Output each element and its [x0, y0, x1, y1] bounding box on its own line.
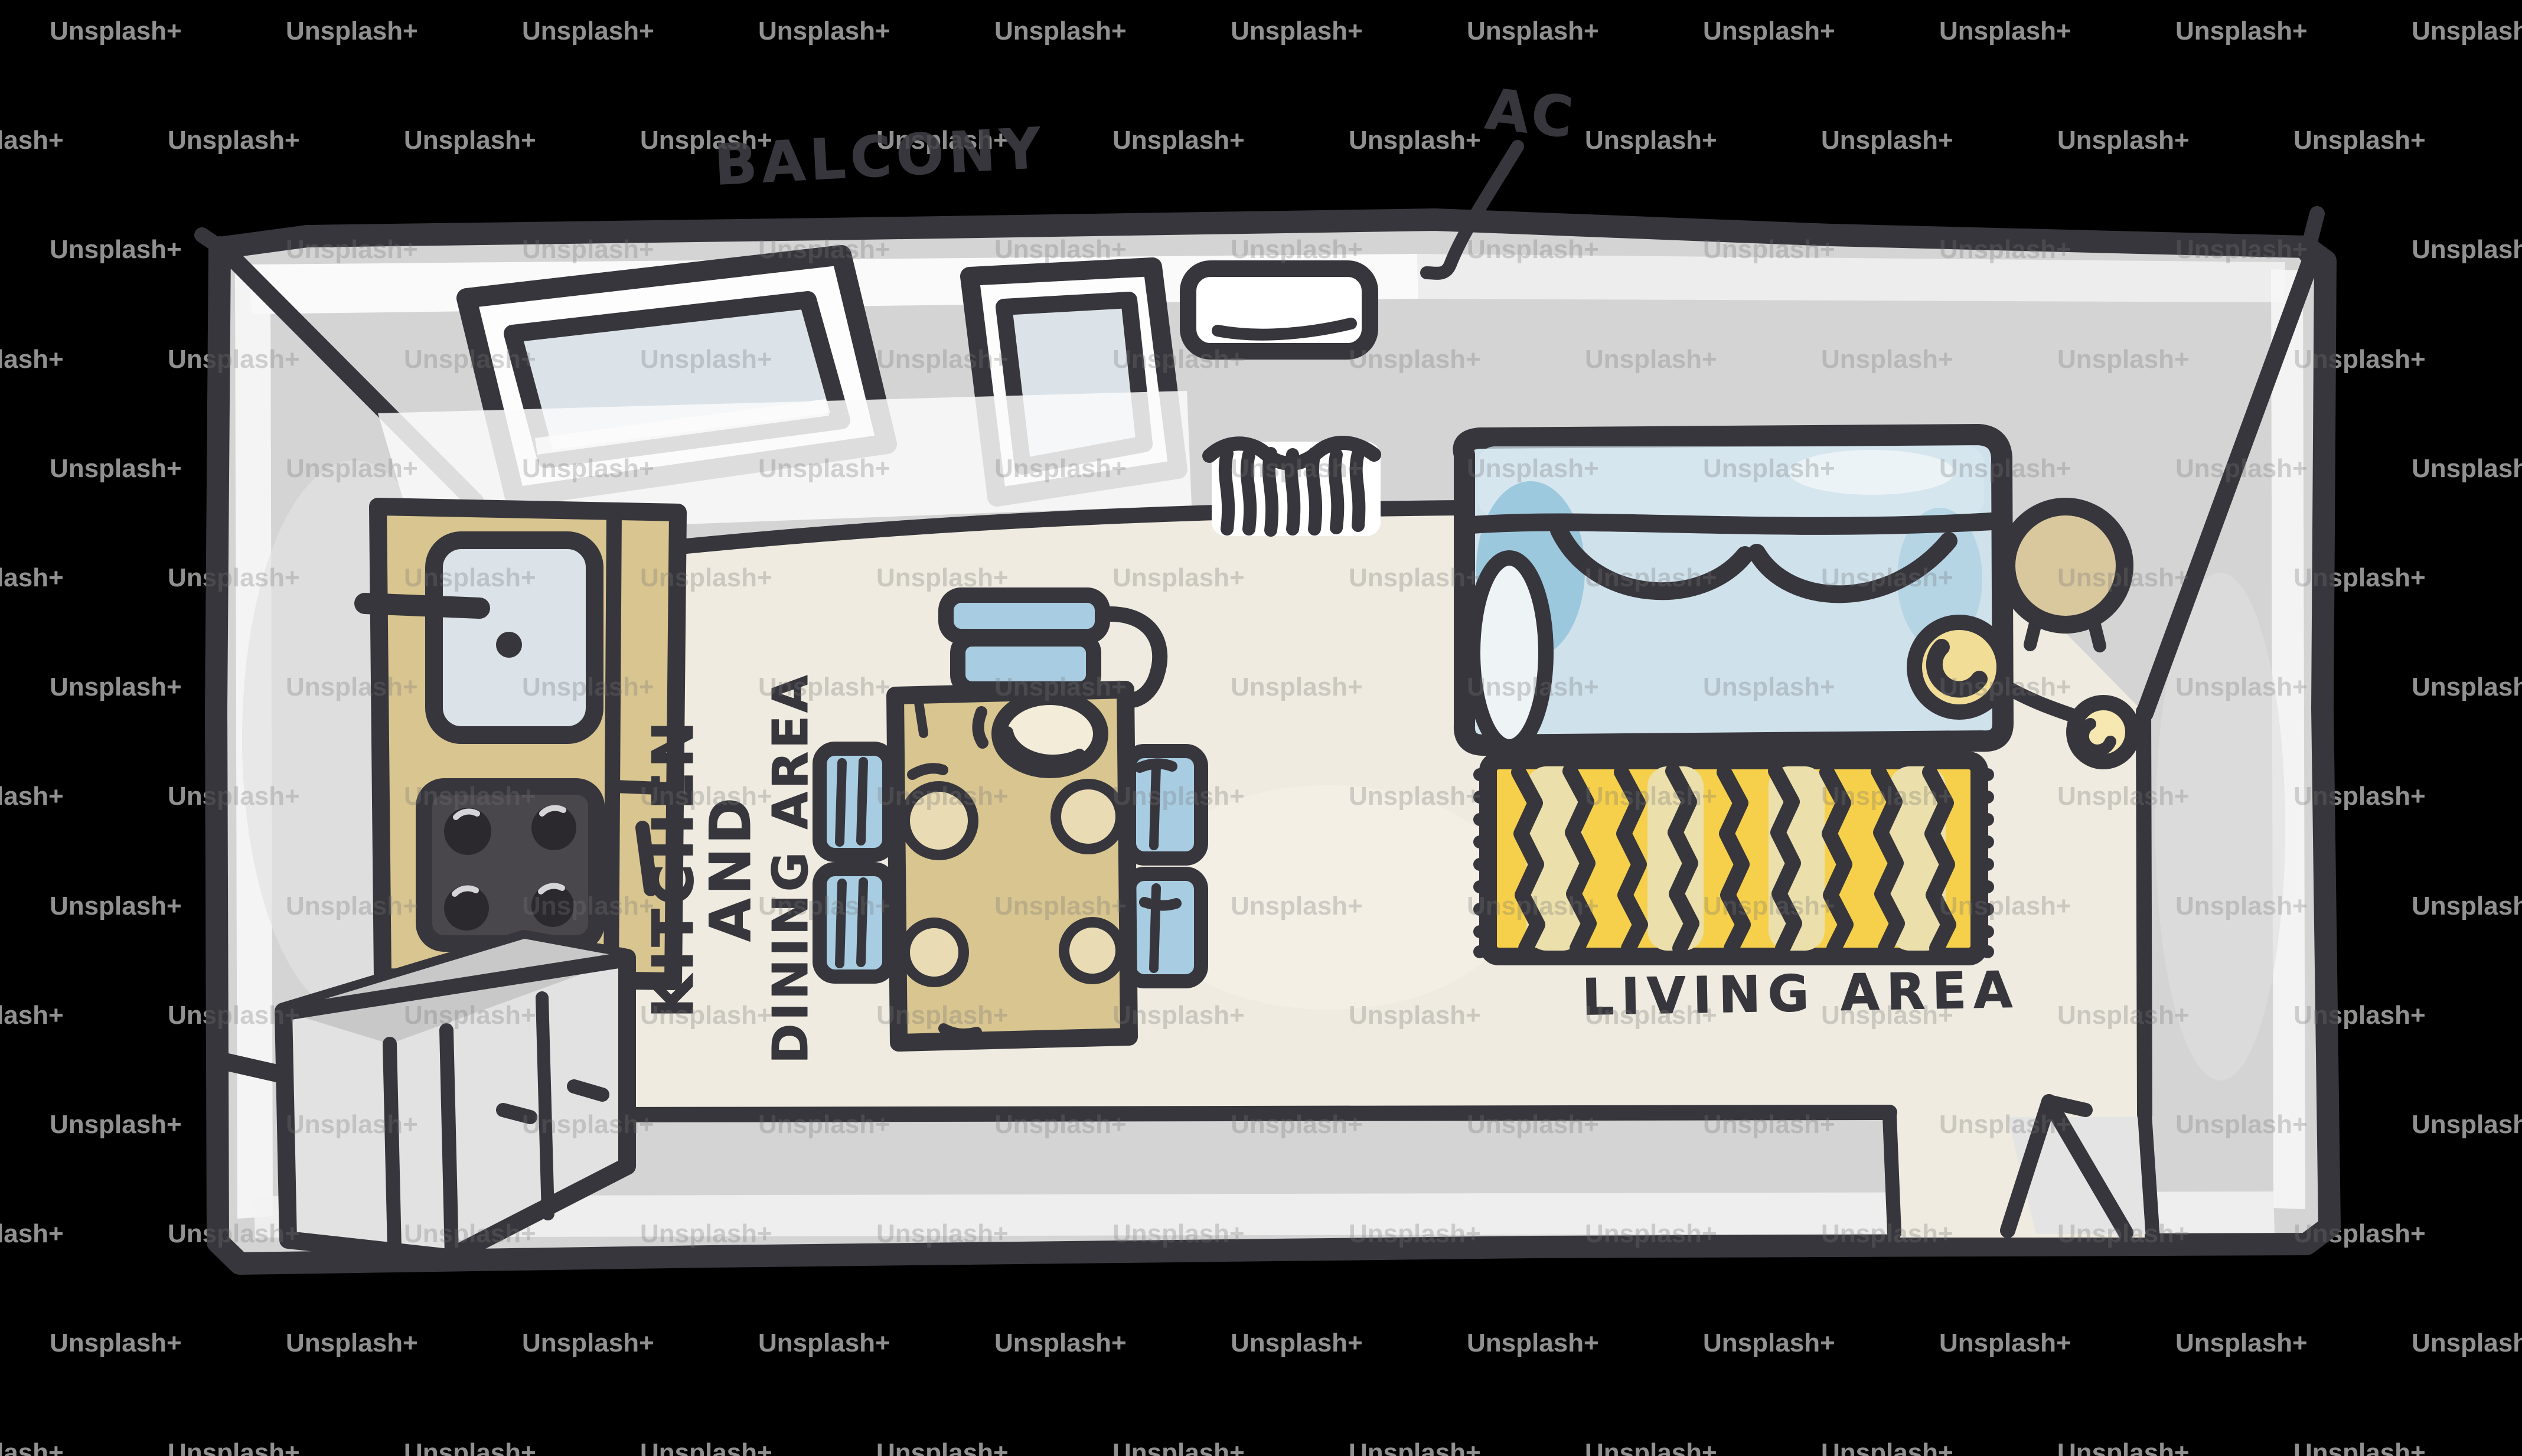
svg-text:AND: AND: [699, 794, 764, 942]
radiator: [1209, 442, 1381, 536]
stove: [424, 786, 596, 944]
plate: [905, 923, 964, 982]
plate: [905, 786, 973, 855]
stock-image-canvas: AC BALCONY KITCHEN AND DINING AREA LIVIN…: [0, 0, 2522, 1456]
cutlery: [1144, 902, 1176, 906]
cutlery: [912, 768, 943, 775]
cutlery: [1140, 763, 1172, 768]
faucet: [365, 603, 479, 608]
dining-chair-right-2: [1129, 874, 1201, 981]
sofa-armrest: [1473, 558, 1546, 747]
cutlery: [944, 1029, 977, 1034]
dining-chair-left-2: [820, 869, 889, 977]
island-handle: [503, 1110, 530, 1117]
plate: [1064, 922, 1121, 979]
kitchen-counter: [365, 507, 678, 981]
dining-chair-left-1: [820, 749, 889, 855]
island-handle: [574, 1086, 602, 1095]
svg-text:DINING AREA: DINING AREA: [763, 672, 819, 1063]
living-area-label: LIVING AREA: [1581, 961, 2019, 1027]
cutlery: [919, 703, 924, 733]
dining-table: [895, 690, 1176, 1043]
ac-unit: [1188, 269, 1370, 351]
balcony-label: BALCONY: [713, 116, 1047, 198]
svg-text:KITCHEN: KITCHEN: [641, 717, 706, 1018]
floor-plan-illustration: AC BALCONY KITCHEN AND DINING AREA LIVIN…: [0, 0, 2522, 1456]
plate: [1056, 784, 1121, 849]
rug: [1473, 760, 1994, 958]
ac-label: AC: [1483, 77, 1578, 151]
